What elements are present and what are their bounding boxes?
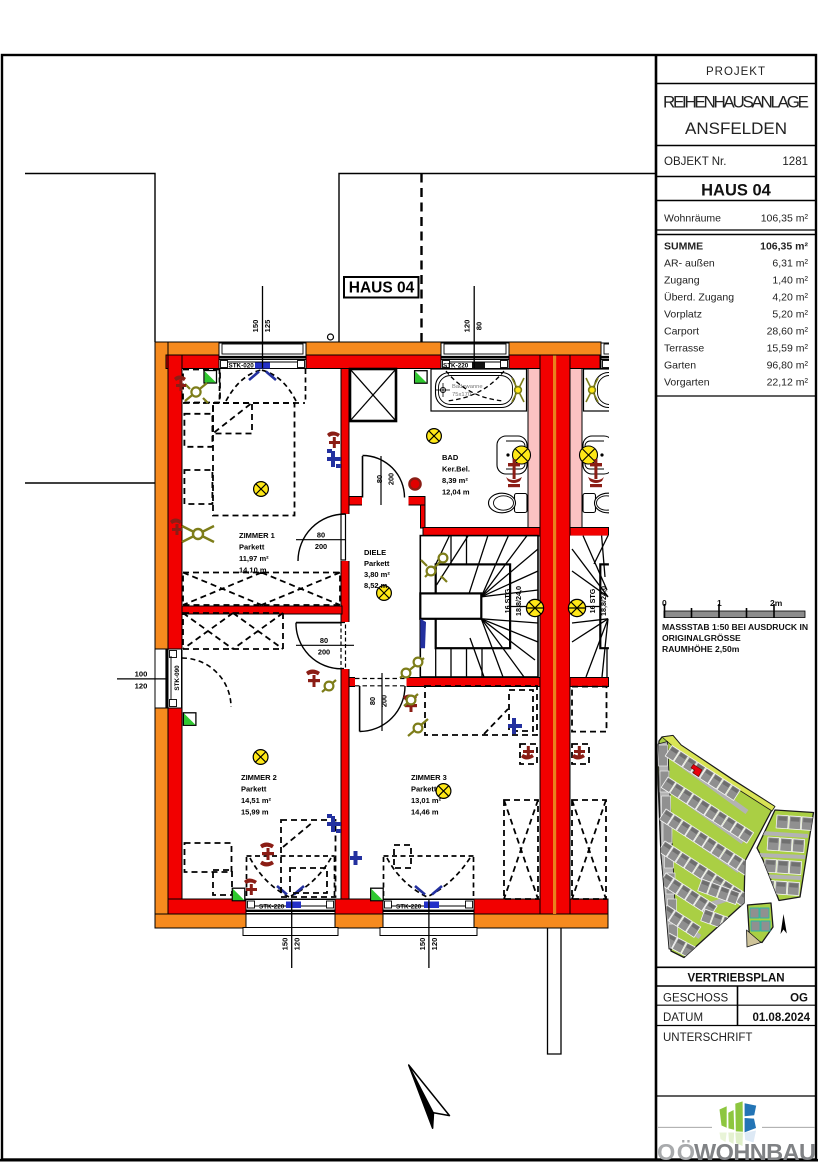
svg-text:DIELE: DIELE (364, 548, 386, 557)
svg-text:Parkett: Parkett (411, 785, 437, 794)
svg-text:150: 150 (281, 938, 290, 951)
svg-text:GESCHOSS: GESCHOSS (663, 993, 729, 1005)
svg-text:PROJEKT: PROJEKT (706, 66, 766, 78)
svg-text:80: 80 (320, 636, 328, 645)
svg-text:RAUMHÖHE 2,50m: RAUMHÖHE 2,50m (662, 644, 740, 654)
svg-text:18,8/24,0: 18,8/24,0 (599, 586, 608, 616)
svg-text:VERTRIEBSPLAN: VERTRIEBSPLAN (687, 973, 784, 985)
svg-text:120: 120 (135, 682, 148, 691)
svg-text:120: 120 (463, 320, 472, 333)
svg-text:200: 200 (380, 695, 389, 707)
svg-text:Vorplatz: Vorplatz (664, 309, 702, 321)
svg-text:15,99 m: 15,99 m (241, 808, 269, 817)
svg-text:96,80 m²: 96,80 m² (767, 360, 809, 372)
svg-text:200: 200 (315, 542, 327, 551)
svg-text:OÖ: OÖ (657, 1139, 695, 1165)
svg-text:OBJEKT Nr.: OBJEKT Nr. (664, 156, 726, 168)
svg-text:1281: 1281 (782, 156, 808, 168)
svg-text:ANSFELDEN: ANSFELDEN (685, 119, 787, 138)
svg-text:150: 150 (418, 938, 427, 951)
svg-text:16 STG: 16 STG (588, 588, 597, 613)
svg-text:75x170: 75x170 (452, 392, 471, 398)
svg-text:12,04 m: 12,04 m (442, 488, 470, 497)
svg-text:100: 100 (135, 670, 148, 679)
svg-text:BAD: BAD (442, 453, 459, 462)
svg-text:DATUM: DATUM (663, 1012, 703, 1024)
svg-text:STK-220: STK-220 (396, 904, 422, 911)
svg-text:Ker.Bel.: Ker.Bel. (442, 465, 470, 474)
svg-text:AR- außen: AR- außen (664, 258, 715, 270)
svg-text:120: 120 (430, 938, 439, 951)
svg-text:UNTERSCHRIFT: UNTERSCHRIFT (663, 1032, 752, 1044)
svg-text:Terrasse: Terrasse (664, 343, 704, 355)
svg-text:15,59 m²: 15,59 m² (767, 343, 809, 355)
svg-text:80: 80 (317, 531, 325, 540)
svg-text:Vorgarten: Vorgarten (664, 377, 710, 389)
svg-text:14,51 m²: 14,51 m² (241, 796, 272, 805)
svg-text:Badewanne: Badewanne (452, 384, 483, 390)
svg-text:OG: OG (790, 993, 808, 1005)
svg-text:Zugang: Zugang (664, 275, 700, 287)
svg-text:Carport: Carport (664, 326, 699, 338)
svg-text:HAUS 04: HAUS 04 (701, 182, 772, 200)
svg-text:REIHENHAUSANLAGE: REIHENHAUSANLAGE (663, 93, 809, 112)
svg-text:4,20 m²: 4,20 m² (772, 292, 808, 304)
svg-text:125: 125 (263, 319, 272, 332)
svg-text:106,35 m²: 106,35 m² (761, 213, 809, 225)
svg-text:ZIMMER 1: ZIMMER 1 (239, 531, 275, 540)
svg-text:16 STG: 16 STG (503, 588, 512, 613)
svg-text:13,01 m²: 13,01 m² (411, 796, 442, 805)
svg-text:HAUS 04: HAUS 04 (349, 280, 415, 297)
svg-text:8,52 m: 8,52 m (364, 581, 388, 590)
svg-text:11,97 m²: 11,97 m² (239, 554, 269, 563)
svg-text:106,35 m²: 106,35 m² (760, 241, 808, 253)
svg-text:Überd. Zugang: Überd. Zugang (664, 292, 734, 304)
svg-text:Parkett: Parkett (364, 559, 390, 568)
svg-text:ZIMMER 2: ZIMMER 2 (241, 773, 277, 782)
svg-text:18,8/24,0: 18,8/24,0 (514, 586, 523, 616)
svg-text:120: 120 (293, 938, 302, 951)
svg-text:STK-220: STK-220 (259, 904, 285, 911)
svg-text:2m: 2m (770, 598, 783, 608)
svg-text:28,60 m²: 28,60 m² (767, 326, 809, 338)
svg-text:150: 150 (251, 320, 260, 333)
svg-text:22,12 m²: 22,12 m² (767, 377, 809, 389)
svg-text:1,40 m²: 1,40 m² (772, 275, 808, 287)
svg-text:STK-020: STK-020 (229, 363, 255, 370)
svg-text:14,10 m: 14,10 m (239, 566, 267, 575)
svg-text:STK-090: STK-090 (174, 665, 181, 691)
svg-text:SUMME: SUMME (664, 241, 703, 253)
svg-text:200: 200 (387, 473, 396, 485)
svg-text:80: 80 (375, 475, 384, 483)
svg-text:WOHNBAU: WOHNBAU (694, 1139, 816, 1165)
svg-text:Wohnräume: Wohnräume (664, 213, 721, 225)
svg-text:Garten: Garten (664, 360, 696, 372)
svg-text:8,39 m²: 8,39 m² (442, 476, 468, 485)
svg-text:14,46 m: 14,46 m (411, 808, 439, 817)
svg-text:Parkett: Parkett (239, 543, 265, 552)
svg-text:MASSSTAB 1:50 BEI AUSDRUCK IN: MASSSTAB 1:50 BEI AUSDRUCK IN (662, 622, 808, 632)
svg-text:80: 80 (475, 322, 484, 330)
svg-text:6,31 m²: 6,31 m² (772, 258, 808, 270)
svg-text:5,20 m²: 5,20 m² (772, 309, 808, 321)
svg-text:Parkett: Parkett (241, 785, 267, 794)
svg-text:3,80 m²: 3,80 m² (364, 570, 390, 579)
svg-text:ORIGINALGRÖSSE: ORIGINALGRÖSSE (662, 633, 741, 643)
svg-text:ZIMMER 3: ZIMMER 3 (411, 773, 447, 782)
svg-text:200: 200 (318, 648, 330, 657)
svg-text:80: 80 (368, 697, 377, 705)
svg-text:01.08.2024: 01.08.2024 (752, 1012, 810, 1024)
